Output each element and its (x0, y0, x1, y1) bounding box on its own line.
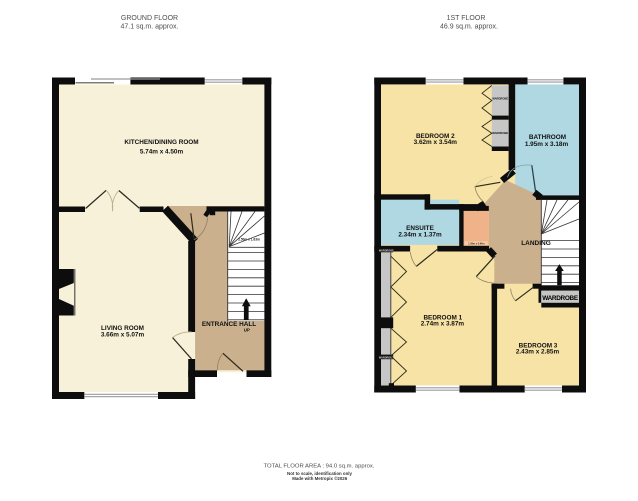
svg-text:1.95m x 3.18m: 1.95m x 3.18m (525, 141, 569, 148)
svg-text:2.50m x 1.63m: 2.50m x 1.63m (238, 238, 260, 242)
svg-text:UP: UP (244, 327, 250, 332)
svg-text:WARDROBE: WARDROBE (379, 249, 394, 252)
svg-text:47.1 sq.m. approx.: 47.1 sq.m. approx. (121, 23, 179, 30)
svg-text:WARDROBE: WARDROBE (492, 97, 508, 101)
svg-text:GROUND FLOOR: GROUND FLOOR (121, 15, 178, 22)
svg-text:LANDING: LANDING (521, 240, 551, 247)
svg-text:5.74m x 4.50m: 5.74m x 4.50m (140, 148, 184, 155)
svg-text:1ST FLOOR: 1ST FLOOR (447, 15, 486, 22)
svg-text:46.9 sq.m. approx.: 46.9 sq.m. approx. (440, 23, 498, 30)
svg-text:KITCHEN/DINING ROOM: KITCHEN/DINING ROOM (124, 139, 198, 146)
svg-text:BATHROOM: BATHROOM (529, 134, 566, 141)
svg-text:WARDROBE: WARDROBE (492, 131, 508, 135)
svg-text:2.74m x 3.87m: 2.74m x 3.87m (421, 321, 465, 328)
svg-text:3.62m x 3.54m: 3.62m x 3.54m (414, 139, 458, 146)
svg-text:3.66m x 5.07m: 3.66m x 5.07m (101, 332, 145, 339)
svg-text:2.34m x 1.37m: 2.34m x 1.37m (398, 231, 442, 238)
svg-text:1.08m x 0.94m: 1.08m x 0.94m (468, 243, 484, 246)
svg-text:TOTAL FLOOR AREA : 94.0 sq.m.: TOTAL FLOOR AREA : 94.0 sq.m. approx. (264, 463, 375, 469)
svg-text:WARDROBE: WARDROBE (542, 295, 579, 302)
svg-text:Made with Metropix ©2026: Made with Metropix ©2026 (292, 476, 348, 481)
svg-text:2.43m x 2.85m: 2.43m x 2.85m (516, 349, 560, 356)
